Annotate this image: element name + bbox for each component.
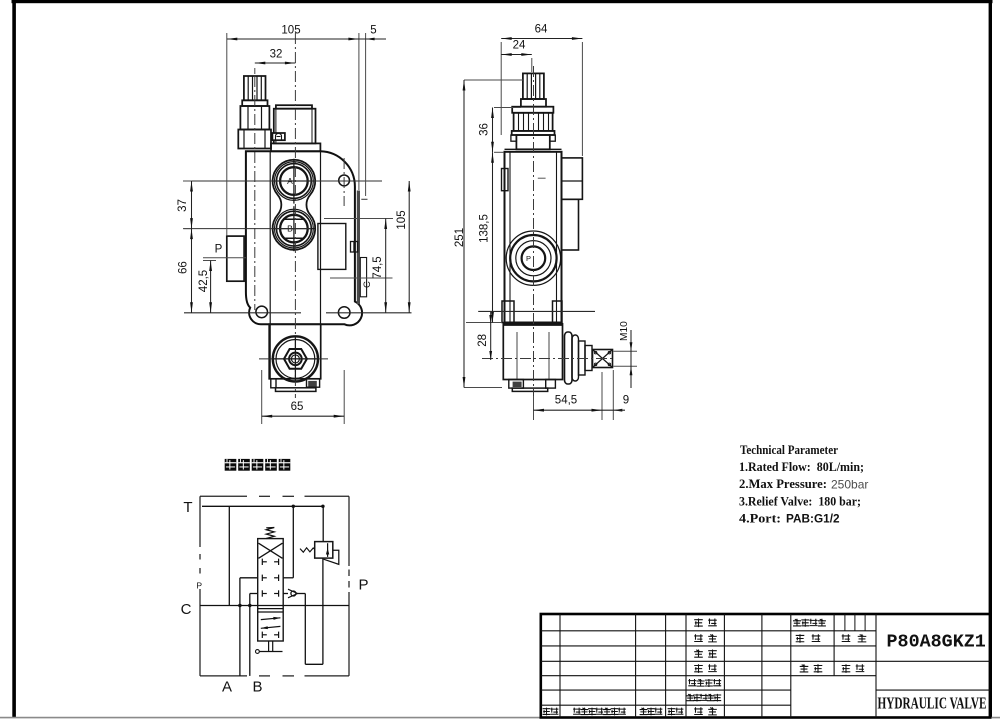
svg-text:42,5: 42,5 [198,270,210,292]
svg-text:P: P [215,244,223,256]
svg-text:66: 66 [178,261,190,274]
svg-text:24: 24 [513,40,526,52]
svg-text:105: 105 [396,210,408,229]
svg-text:36: 36 [478,123,490,136]
svg-text:T: T [183,499,192,516]
svg-text:32: 32 [270,49,283,61]
svg-text:138,5: 138,5 [478,214,490,243]
svg-text:B: B [252,679,262,696]
svg-text:65: 65 [291,401,304,413]
svg-text:P: P [526,254,531,263]
svg-text:C: C [181,601,192,618]
svg-text:P80A8GKZ1: P80A8GKZ1 [887,632,986,653]
svg-text:54,5: 54,5 [555,395,577,407]
svg-text:M10: M10 [619,321,630,341]
svg-text:28: 28 [477,334,489,347]
svg-text:64: 64 [535,24,548,36]
svg-text:A: A [222,679,232,696]
svg-text:3.Relief Valve: 180 bar;: 3.Relief Valve: 180 bar; [739,494,861,508]
svg-text:4.Port:: 4.Port: [739,512,781,526]
svg-text:251: 251 [454,228,466,247]
svg-text:1.Rated Flow: 80L/min;: 1.Rated Flow: 80L/min; [739,460,864,474]
svg-text:Technical Parameter: Technical Parameter [740,443,839,457]
svg-text:P: P [196,581,202,591]
svg-text:5: 5 [370,25,376,37]
svg-text:9: 9 [623,395,629,407]
svg-text:250bar: 250bar [831,478,868,492]
svg-text:C: C [362,281,373,288]
svg-text:2.Max Pressure:: 2.Max Pressure: [739,477,827,491]
svg-text:37: 37 [177,199,189,212]
svg-text:74,5: 74,5 [372,256,384,278]
svg-text:P: P [358,577,368,594]
svg-text:PAB:G1/2: PAB:G1/2 [786,512,840,526]
svg-text:HYDRAULIC VALVE: HYDRAULIC VALVE [878,694,987,713]
svg-text:105: 105 [281,25,300,37]
